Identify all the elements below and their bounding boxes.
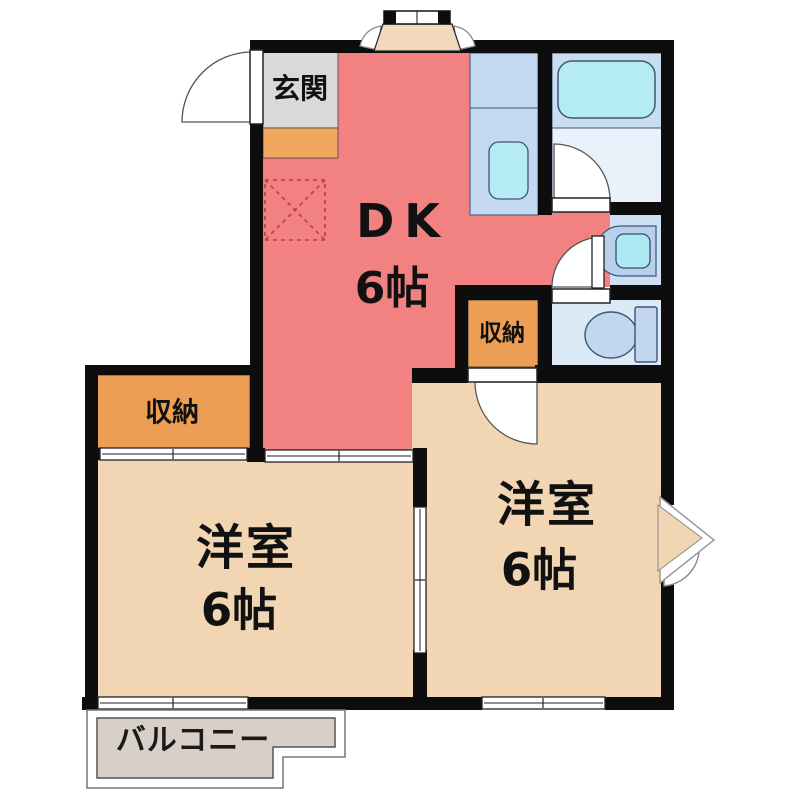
closet-left-label: 収納	[145, 400, 199, 427]
bedroom-right-size: 6帖	[501, 548, 577, 593]
sliding-door-dk-bedroom	[265, 450, 413, 462]
window-left	[98, 697, 248, 709]
bedroom-left-label: 洋室	[196, 524, 296, 572]
room-bedroom-left-floor	[98, 455, 413, 698]
bathtub	[558, 61, 655, 118]
toilet-tank	[635, 307, 657, 362]
bay-window-top	[360, 11, 475, 51]
closet-right-label: 収納	[479, 323, 525, 346]
balcony-label: バルコニー	[116, 726, 270, 756]
washbasin	[616, 234, 650, 268]
floorplan-canvas: 玄関 DK 6帖 収納 収納 洋室 6帖 洋室 6帖 バルコニー	[0, 0, 800, 800]
entrance-step	[263, 128, 338, 158]
floorplan-drawing	[0, 0, 800, 800]
sliding-door-closet	[100, 448, 247, 460]
dk-label: DK	[356, 198, 450, 244]
entrance-door	[182, 50, 263, 124]
bedroom-left-size: 6帖	[201, 588, 277, 633]
bedroom-right-label: 洋室	[497, 481, 597, 529]
window-right	[482, 697, 605, 709]
entrance-label: 玄関	[272, 75, 328, 103]
sliding-door-between-bedrooms	[414, 507, 426, 653]
toilet-door	[552, 289, 610, 303]
dk-size-label: 6帖	[355, 267, 430, 311]
kitchen-sink	[489, 142, 528, 199]
toilet-bowl	[585, 312, 637, 358]
